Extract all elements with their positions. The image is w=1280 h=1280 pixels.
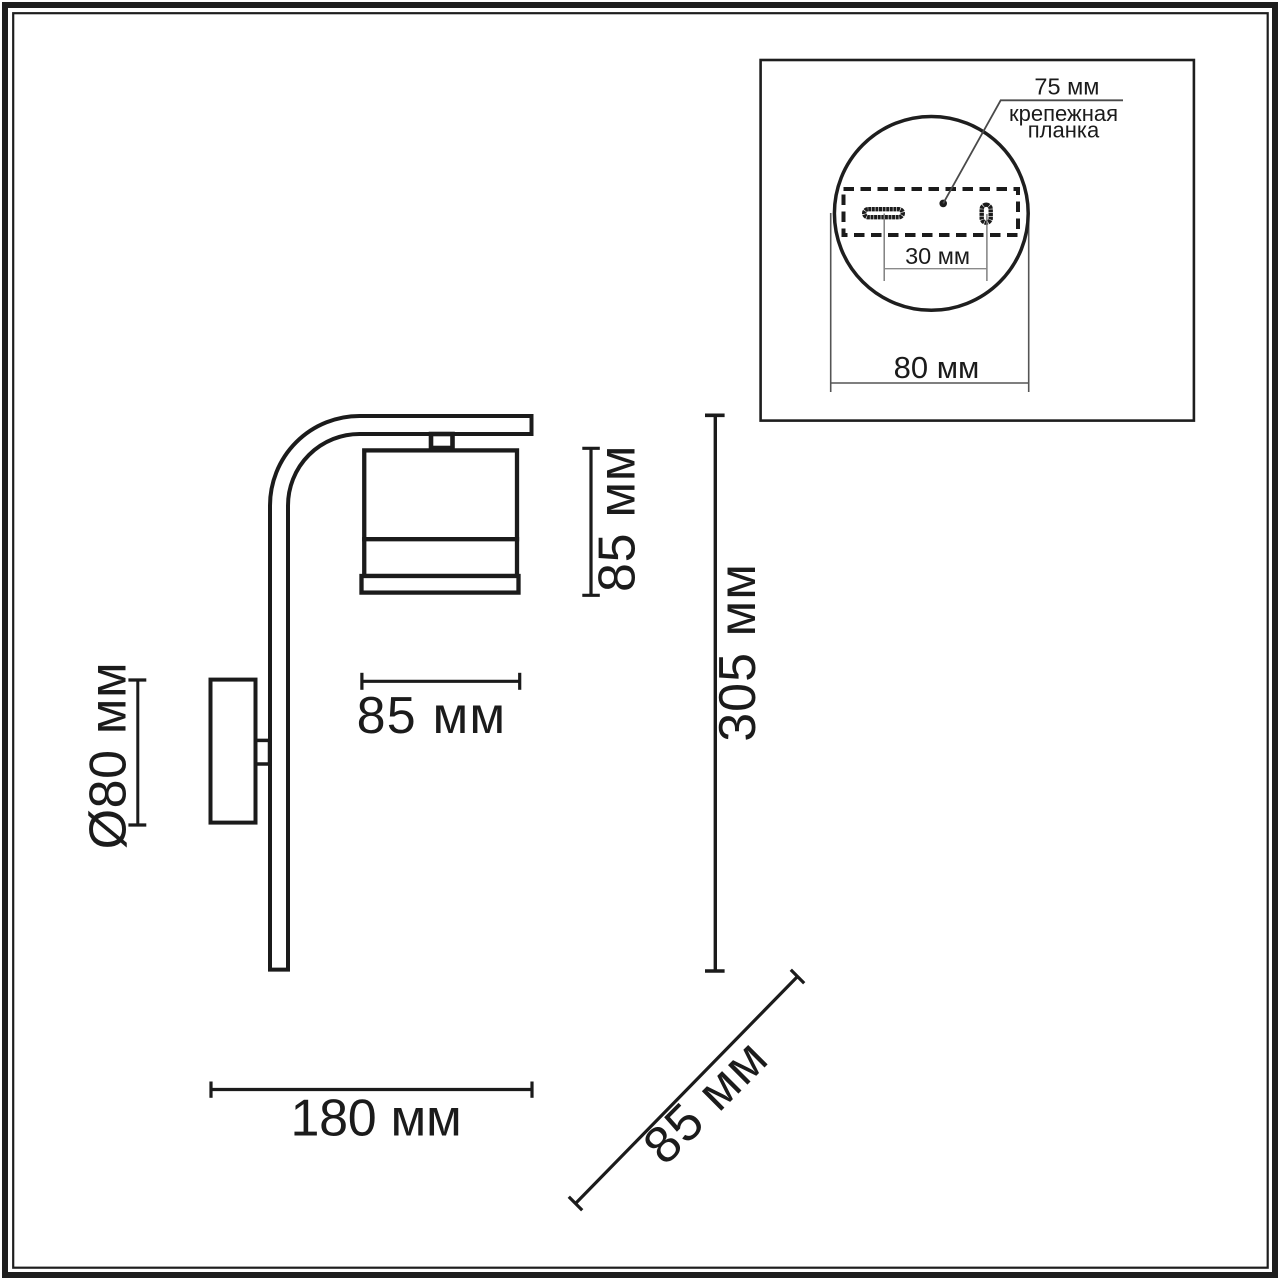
svg-text:Ø80 мм: Ø80 мм [80,662,138,850]
svg-text:80 мм: 80 мм [894,350,980,385]
svg-text:75 мм: 75 мм [1034,74,1099,100]
svg-text:планка: планка [1028,118,1100,143]
svg-text:305 мм: 305 мм [709,563,767,742]
svg-text:85 мм: 85 мм [357,687,507,745]
svg-text:85 мм: 85 мм [588,445,646,592]
svg-text:30 мм: 30 мм [905,243,970,269]
svg-text:180 мм: 180 мм [291,1090,462,1148]
